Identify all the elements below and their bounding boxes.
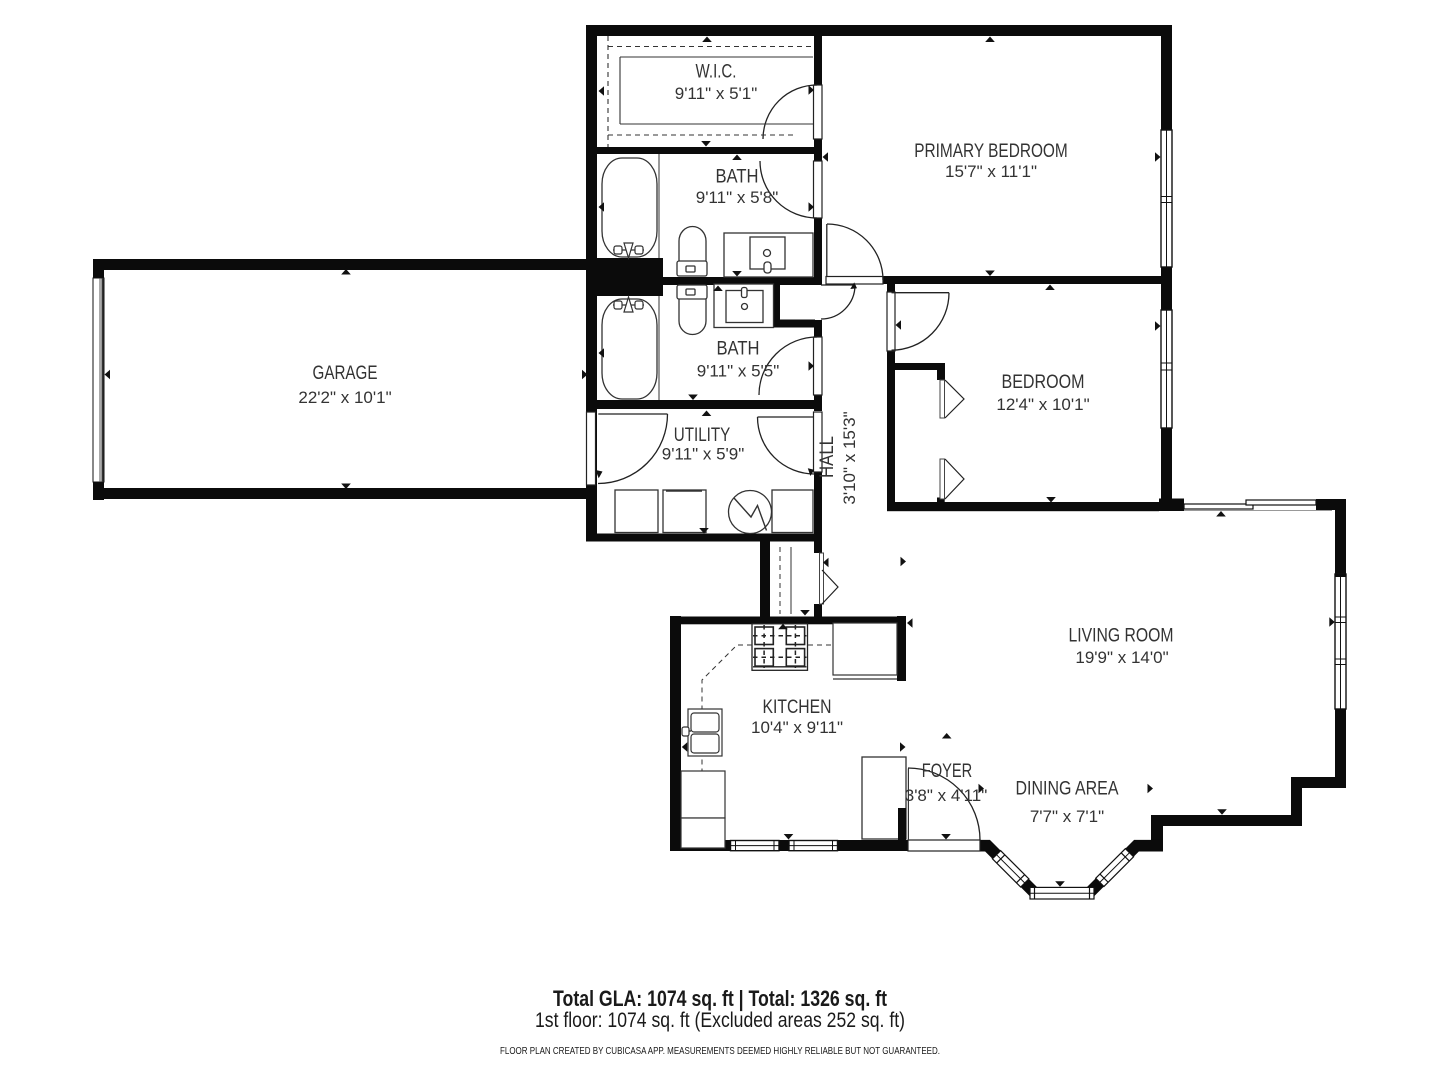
svg-text:PRIMARY BEDROOM: PRIMARY BEDROOM bbox=[914, 141, 1068, 162]
svg-text:15'7" x 11'1": 15'7" x 11'1" bbox=[945, 162, 1037, 181]
svg-text:9'11" x 5'9": 9'11" x 5'9" bbox=[662, 445, 745, 464]
svg-text:1st floor: 1074 sq. ft (Exclud: 1st floor: 1074 sq. ft (Excluded areas 2… bbox=[535, 1009, 905, 1032]
svg-text:W.I.C.: W.I.C. bbox=[696, 62, 737, 83]
svg-text:Total GLA: 1074 sq. ft | Total: Total GLA: 1074 sq. ft | Total: 1326 sq.… bbox=[553, 986, 888, 1011]
svg-text:FLOOR PLAN CREATED BY CUBICASA: FLOOR PLAN CREATED BY CUBICASA APP. MEAS… bbox=[500, 1045, 940, 1057]
svg-text:7'7" x 7'1": 7'7" x 7'1" bbox=[1030, 807, 1104, 826]
svg-text:12'4" x 10'1": 12'4" x 10'1" bbox=[996, 395, 1089, 414]
svg-text:LIVING ROOM: LIVING ROOM bbox=[1069, 626, 1174, 647]
svg-text:BATH: BATH bbox=[716, 167, 759, 188]
svg-text:DINING AREA: DINING AREA bbox=[1016, 779, 1119, 800]
svg-text:KITCHEN: KITCHEN bbox=[763, 697, 832, 718]
svg-text:22'2" x 10'1": 22'2" x 10'1" bbox=[298, 388, 391, 407]
svg-text:HALL: HALL bbox=[817, 436, 838, 478]
svg-text:FOYER: FOYER bbox=[922, 761, 973, 782]
svg-text:BEDROOM: BEDROOM bbox=[1002, 372, 1085, 393]
svg-text:9'11" x 5'1": 9'11" x 5'1" bbox=[675, 84, 758, 103]
svg-text:19'9" x 14'0": 19'9" x 14'0" bbox=[1075, 648, 1168, 667]
svg-text:9'11" x 5'5": 9'11" x 5'5" bbox=[697, 362, 780, 381]
svg-text:UTILITY: UTILITY bbox=[674, 425, 731, 446]
svg-text:3'8" x 4'11": 3'8" x 4'11" bbox=[905, 786, 988, 805]
svg-text:BATH: BATH bbox=[717, 339, 760, 360]
svg-text:3'10" x 15'3": 3'10" x 15'3" bbox=[840, 411, 859, 504]
svg-text:GARAGE: GARAGE bbox=[313, 363, 378, 384]
svg-text:10'4" x 9'11": 10'4" x 9'11" bbox=[751, 718, 843, 737]
svg-text:9'11" x 5'8": 9'11" x 5'8" bbox=[696, 188, 779, 207]
